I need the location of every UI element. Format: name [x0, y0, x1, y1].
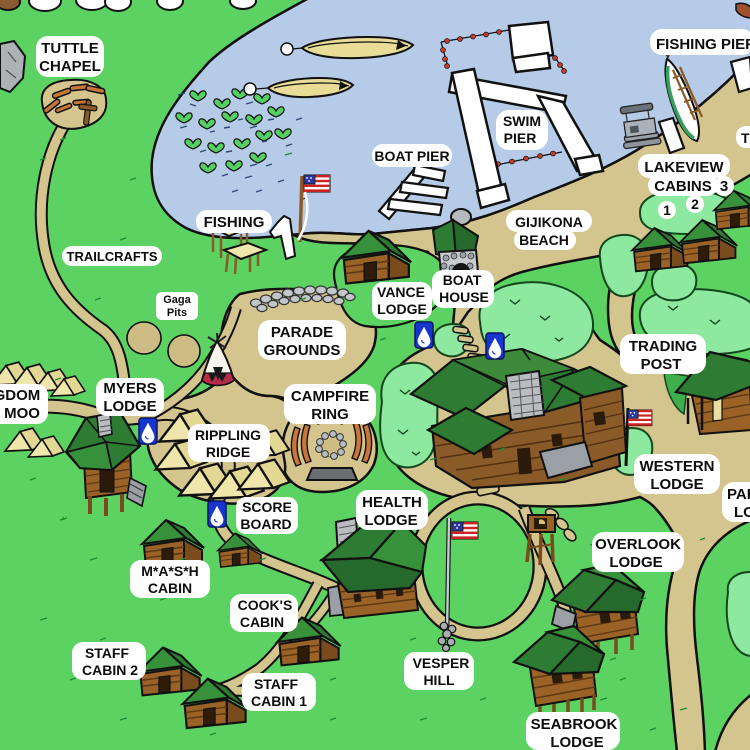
svg-text:STAFF: STAFF [85, 645, 130, 661]
svg-text:LODGE: LODGE [364, 512, 417, 529]
svg-text:SWIM: SWIM [503, 113, 541, 129]
svg-text:POST: POST [641, 356, 682, 373]
svg-text:LODGE: LODGE [103, 398, 156, 415]
svg-text:KINGDOM: KINGDOM [0, 387, 40, 404]
svg-text:BOARD: BOARD [240, 516, 291, 532]
svg-text:VANCE: VANCE [377, 284, 425, 300]
svg-text:VESPER: VESPER [413, 655, 470, 671]
svg-text:STAFF: STAFF [254, 676, 299, 692]
svg-text:GROUNDS: GROUNDS [264, 342, 341, 359]
svg-text:TE: TE [741, 130, 750, 146]
svg-text:LODGE: LODGE [550, 734, 603, 750]
svg-text:CABIN 2: CABIN 2 [82, 662, 138, 678]
svg-text:TUTTLE: TUTTLE [41, 40, 99, 57]
svg-text:SCORE: SCORE [242, 499, 292, 515]
svg-text:GIJIKONA: GIJIKONA [515, 214, 583, 230]
svg-text:MOO: MOO [4, 405, 40, 422]
svg-text:M*A*S*H: M*A*S*H [141, 563, 199, 579]
svg-text:CABIN: CABIN [240, 614, 284, 630]
svg-text:RING: RING [311, 406, 349, 423]
svg-text:PARK: PARK [727, 486, 750, 503]
svg-text:RIDGE: RIDGE [206, 444, 250, 460]
svg-text:1: 1 [663, 202, 671, 218]
svg-text:FISHING: FISHING [204, 214, 265, 231]
svg-text:TRAILCRAFTS: TRAILCRAFTS [67, 249, 158, 264]
svg-text:LAKEVIEW: LAKEVIEW [644, 159, 724, 176]
svg-text:CHAPEL: CHAPEL [39, 58, 101, 75]
svg-text:SEABROOK: SEABROOK [531, 716, 618, 733]
svg-text:TRADING: TRADING [629, 338, 697, 355]
svg-text:CABIN: CABIN [148, 580, 192, 596]
svg-text:WESTERN: WESTERN [640, 458, 715, 475]
svg-text:BOAT: BOAT [443, 272, 482, 288]
svg-text:3: 3 [720, 178, 728, 195]
svg-text:HOUSE: HOUSE [439, 289, 489, 305]
svg-text:LOT: LOT [734, 504, 750, 521]
svg-text:CAMPFIRE: CAMPFIRE [291, 388, 369, 405]
svg-text:COOK'S: COOK'S [238, 597, 293, 613]
svg-text:RIPPLING: RIPPLING [195, 427, 261, 443]
svg-text:MYERS: MYERS [103, 380, 156, 397]
svg-text:Gaga: Gaga [163, 294, 191, 306]
svg-text:LODGE: LODGE [650, 476, 703, 493]
svg-text:HEALTH: HEALTH [362, 494, 422, 511]
svg-text:FISHING PIER: FISHING PIER [656, 36, 750, 53]
svg-text:CABIN 1: CABIN 1 [251, 693, 307, 709]
svg-text:BEACH: BEACH [519, 232, 569, 248]
svg-text:2: 2 [691, 196, 699, 212]
svg-text:LODGE: LODGE [377, 301, 427, 317]
svg-text:Pits: Pits [167, 307, 187, 319]
svg-text:CABINS: CABINS [654, 178, 712, 195]
svg-text:HILL: HILL [423, 672, 455, 688]
svg-text:PARADE: PARADE [271, 324, 333, 341]
svg-text:LODGE: LODGE [609, 554, 662, 571]
svg-text:PIER: PIER [504, 130, 537, 146]
svg-text:OVERLOOK: OVERLOOK [595, 536, 681, 553]
svg-text:BOAT PIER: BOAT PIER [374, 148, 449, 164]
